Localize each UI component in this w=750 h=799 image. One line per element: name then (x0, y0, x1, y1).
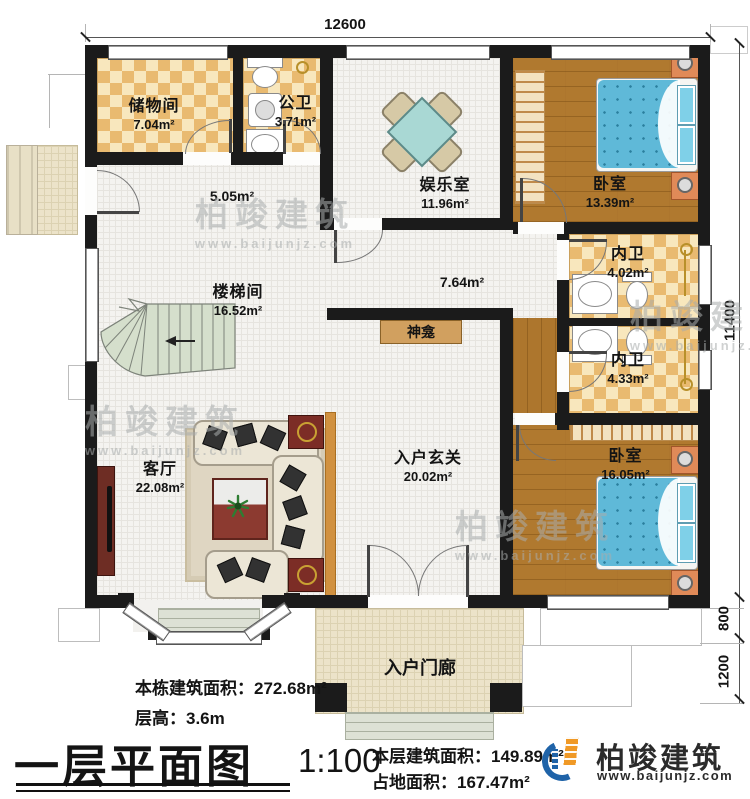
lamp-icon (677, 177, 693, 193)
corridor-wood-floor (513, 318, 557, 413)
area-label-hallway: 5.05m² (182, 188, 282, 204)
wall (698, 45, 710, 608)
lamp-icon (677, 575, 693, 591)
room-name: 入户玄关 (373, 450, 483, 469)
room-name: 卧室 (573, 448, 678, 467)
dimension-height: 11400 (722, 289, 739, 353)
entrance-door-opening (368, 595, 468, 608)
extension-line (49, 74, 50, 128)
dimension-line-right (739, 42, 740, 704)
sink-icon (578, 281, 612, 307)
logo-icon (540, 733, 590, 785)
door-opening (557, 352, 569, 392)
window (108, 45, 228, 60)
porch-steps (345, 712, 494, 740)
nightstand (671, 570, 699, 598)
dimension-porch: 1200 (716, 648, 733, 696)
room-area: 13.39m² (555, 195, 665, 210)
window (698, 350, 712, 390)
wall (320, 45, 333, 230)
side-terrace (36, 145, 78, 235)
extension-line (48, 74, 86, 75)
dimension-width: 12600 (305, 16, 385, 33)
room-label-storage: 储物间 7.04m² (99, 98, 209, 132)
rear-ledge (540, 608, 702, 646)
room-name: 客厅 (105, 461, 215, 480)
extension-line (700, 643, 744, 644)
room-label-porch: 入户门廊 (345, 654, 495, 680)
room-label-entertainment: 娱乐室 11.96m² (390, 177, 500, 211)
room-area: 22.08m² (105, 480, 215, 495)
room-area: 4.02m² (573, 265, 683, 280)
shrine-cabinet: 神龛 (380, 320, 462, 344)
lamp-icon (677, 451, 693, 467)
wall (557, 318, 710, 326)
room-area: 20.02m² (373, 469, 483, 484)
title-underline-2 (16, 790, 290, 792)
door-opening (85, 167, 97, 215)
room-area: 16.52m² (183, 303, 293, 318)
wall (500, 308, 513, 608)
room-label-inner-bath-lower: 内卫 4.33m² (573, 352, 683, 386)
room-name: 娱乐室 (390, 177, 500, 196)
room-area: 7.04m² (99, 117, 209, 132)
area-label-corridor: 7.64m² (412, 274, 512, 290)
door-opening (334, 218, 382, 230)
pillow (678, 86, 695, 124)
extension-line (700, 703, 744, 704)
scale-text: 1:100 (298, 742, 381, 780)
room-label-foyer: 入户玄关 20.02m² (373, 450, 483, 484)
window (85, 248, 99, 362)
door-opening (515, 413, 555, 425)
plant-icon (226, 494, 250, 518)
floor-height-text: 层高：3.6m (135, 704, 225, 729)
pillow (678, 484, 695, 522)
room-area: 16.05m² (573, 467, 678, 482)
room-name: 卧室 (555, 176, 665, 195)
floor-drain-icon (296, 61, 309, 74)
dimension-ledge: 800 (716, 595, 733, 643)
door-opening (518, 222, 564, 234)
wall (233, 45, 243, 165)
wall (500, 45, 513, 230)
footprint-area-text: 占地面积：167.47m² (372, 768, 530, 793)
room-label-public-bath: 公卫 3.71m² (258, 95, 333, 129)
nightstand (671, 172, 699, 200)
room-area: 4.33m² (573, 371, 683, 386)
towel-bar (684, 250, 686, 296)
room-name: 储物间 (99, 98, 209, 117)
room-name: 内卫 (573, 352, 683, 371)
rear-ledge-2 (522, 645, 632, 707)
room-label-bedroom-bottom: 卧室 16.05m² (573, 448, 678, 482)
side-table-medallion (297, 565, 317, 585)
dimension-line-top (85, 37, 710, 38)
logo-building-blue (550, 747, 560, 771)
room-name: 内卫 (573, 246, 683, 265)
toilet-icon (252, 66, 278, 88)
room-area: 3.71m² (258, 114, 333, 129)
total-area-text: 本栋建筑面积：272.68m² (135, 674, 327, 699)
porch-column (490, 683, 522, 712)
room-label-stair-hall: 楼梯间 16.52m² (183, 284, 293, 318)
wall (667, 595, 710, 608)
wall (327, 308, 500, 320)
door-opening (557, 240, 569, 280)
floor-area-text: 本层建筑面积：149.89m² (372, 742, 564, 767)
room-name: 楼梯间 (183, 284, 293, 303)
wood-partition (325, 412, 336, 599)
window (698, 245, 712, 305)
tv-icon (107, 486, 112, 552)
floor-plan: 神龛 储物间 7.04m² 公卫 3.71m² 5.05m² 娱乐室 11.96… (0, 0, 750, 799)
room-label-living: 客厅 22.08m² (105, 461, 215, 495)
room-label-inner-bath-upper: 内卫 4.02m² (573, 246, 683, 280)
logo-url: www.baijunjz.com (597, 768, 733, 783)
window (346, 45, 490, 60)
side-terrace-steps (6, 145, 38, 235)
room-label-bedroom-top: 卧室 13.39m² (555, 176, 665, 210)
room-name: 公卫 (258, 95, 333, 114)
side-table-medallion (297, 422, 317, 442)
pillow (678, 126, 695, 164)
window (551, 45, 690, 60)
toilet-icon (626, 281, 648, 309)
room-area: 11.96m² (390, 196, 500, 211)
pillow (678, 524, 695, 562)
wall (553, 413, 710, 425)
logo-building-orange (560, 735, 581, 767)
bay-side-ledge (58, 608, 100, 642)
window (547, 595, 669, 610)
title-underline (16, 783, 290, 786)
